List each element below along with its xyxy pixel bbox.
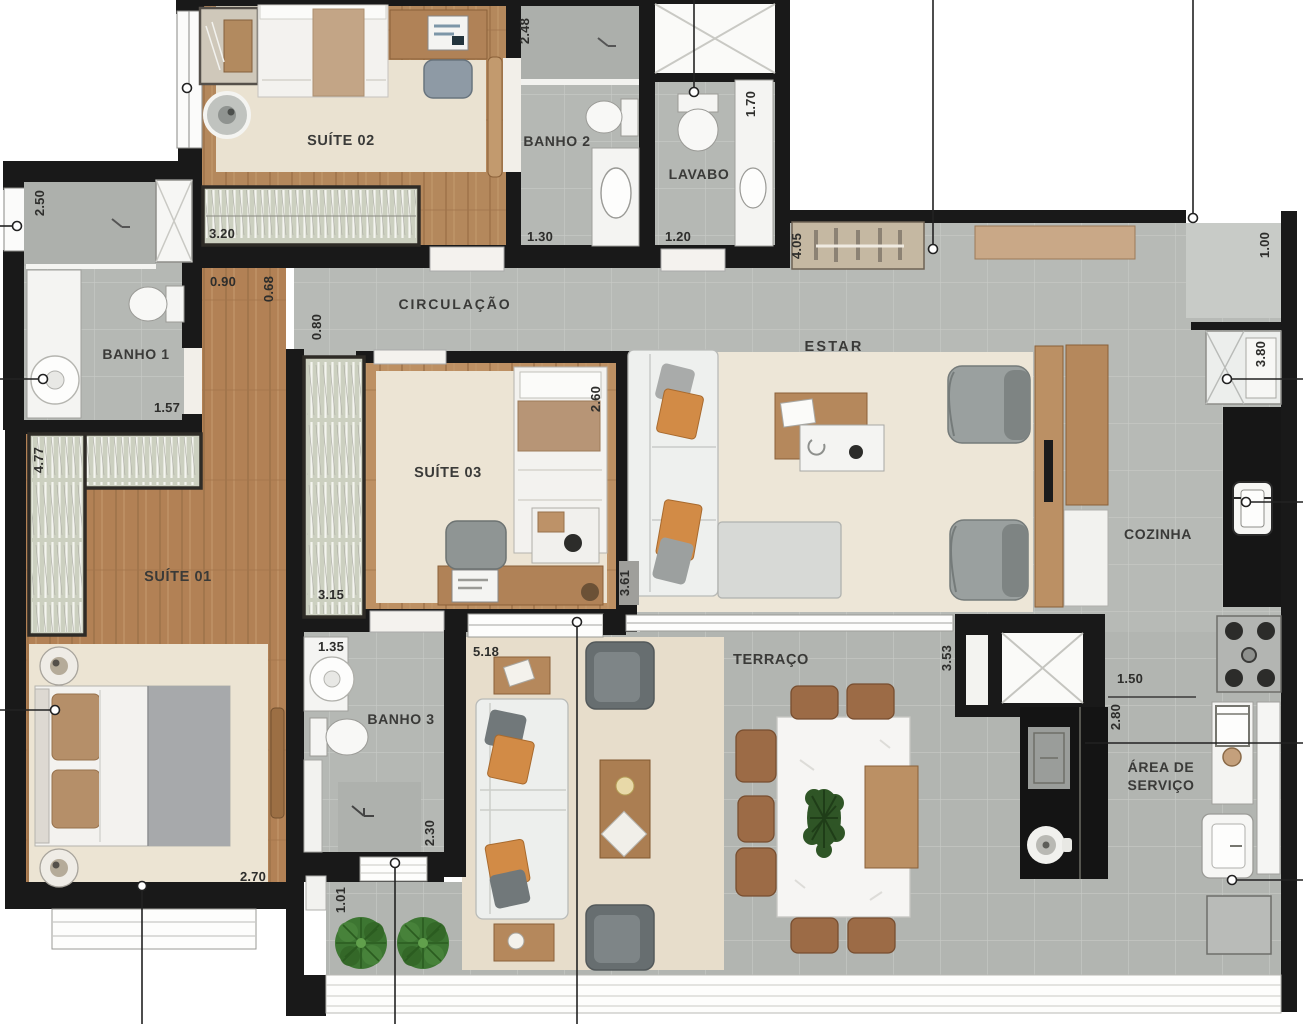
svg-text:3.53: 3.53 — [939, 645, 954, 671]
svg-text:1.70: 1.70 — [743, 91, 758, 117]
svg-text:4.05: 4.05 — [789, 233, 804, 259]
svg-text:TERRAÇO: TERRAÇO — [733, 652, 809, 668]
svg-text:BANHO 1: BANHO 1 — [102, 346, 169, 362]
svg-text:0.68: 0.68 — [261, 276, 276, 302]
svg-text:3.61: 3.61 — [617, 570, 632, 596]
svg-text:1.35: 1.35 — [318, 639, 344, 654]
svg-text:LAVABO: LAVABO — [669, 166, 730, 182]
svg-text:2.48: 2.48 — [517, 18, 532, 44]
svg-text:3.20: 3.20 — [209, 226, 235, 241]
svg-text:COZINHA: COZINHA — [1124, 526, 1192, 542]
svg-text:2.60: 2.60 — [588, 386, 603, 412]
svg-text:ESTAR: ESTAR — [804, 339, 863, 355]
svg-text:SUÍTE 02: SUÍTE 02 — [307, 132, 375, 149]
svg-text:SERVIÇO: SERVIÇO — [1128, 777, 1195, 793]
svg-text:1.57: 1.57 — [154, 400, 180, 415]
svg-text:BANHO 2: BANHO 2 — [523, 133, 590, 149]
svg-text:1.30: 1.30 — [527, 229, 553, 244]
svg-text:2.50: 2.50 — [32, 190, 47, 216]
svg-text:2.30: 2.30 — [422, 820, 437, 846]
svg-text:ÁREA DE: ÁREA DE — [1128, 759, 1195, 775]
svg-text:3.80: 3.80 — [1253, 341, 1268, 367]
svg-text:0.80: 0.80 — [309, 314, 324, 340]
svg-text:0.90: 0.90 — [210, 274, 236, 289]
svg-text:1.50: 1.50 — [1117, 671, 1143, 686]
svg-text:4.77: 4.77 — [31, 447, 46, 473]
svg-text:2.80: 2.80 — [1108, 704, 1123, 730]
svg-text:BANHO 3: BANHO 3 — [367, 711, 434, 727]
svg-text:1.20: 1.20 — [665, 229, 691, 244]
svg-text:5.18: 5.18 — [473, 644, 499, 659]
svg-text:1.00: 1.00 — [1257, 232, 1272, 258]
svg-text:CIRCULAÇÃO: CIRCULAÇÃO — [398, 296, 511, 312]
svg-text:1.01: 1.01 — [333, 887, 348, 913]
svg-text:2.70: 2.70 — [240, 869, 266, 884]
svg-text:3.15: 3.15 — [318, 587, 344, 602]
svg-text:SUÍTE 01: SUÍTE 01 — [144, 568, 212, 585]
svg-text:SUÍTE 03: SUÍTE 03 — [414, 464, 482, 481]
